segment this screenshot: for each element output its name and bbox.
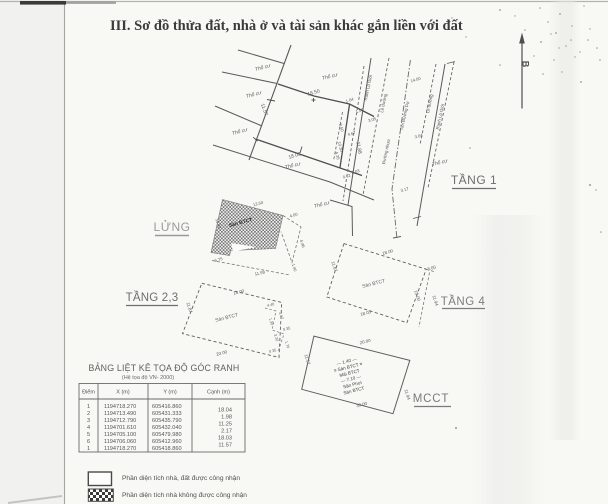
svg-text:1194713.490: 1194713.490 [104, 411, 136, 417]
svg-text:1194718.270: 1194718.270 [104, 404, 136, 410]
svg-text:LỬNG: LỬNG [154, 219, 191, 234]
svg-text:1194701.610: 1194701.610 [104, 425, 136, 431]
svg-text:605416.860: 605416.860 [152, 404, 182, 410]
svg-text:Phần diện tích nhà, đất được c: Phần diện tích nhà, đất được công nhận [122, 473, 240, 482]
svg-text:Phần diện tích nhà không được: Phần diện tích nhà không được công nhận [122, 490, 247, 499]
svg-text:3: 3 [87, 418, 90, 424]
svg-text:Y (m): Y (m) [163, 390, 177, 396]
svg-text:III. Sơ đồ thửa đất, nhà ở và: III. Sơ đồ thửa đất, nhà ở và tài sản kh… [110, 18, 463, 34]
svg-text:BẢNG LIỆT KÊ TỌA ĐỘ GÓC RANH: BẢNG LIỆT KÊ TỌA ĐỘ GÓC RANH [89, 362, 240, 373]
svg-text:18.04: 18.04 [218, 408, 232, 414]
svg-text:1: 1 [87, 404, 90, 410]
svg-text:(Hệ tọa độ VN- 2000): (Hệ tọa độ VN- 2000) [122, 375, 174, 381]
svg-text:605418.860: 605418.860 [152, 446, 182, 452]
svg-text:605435.790: 605435.790 [152, 418, 182, 424]
svg-text:605432.040: 605432.040 [152, 425, 182, 431]
svg-text:18.03: 18.03 [218, 436, 232, 442]
svg-text:1.98: 1.98 [221, 415, 232, 421]
svg-text:TẦNG 2,3: TẦNG 2,3 [126, 291, 179, 304]
svg-text:4: 4 [87, 425, 90, 431]
svg-text:1194718.270: 1194718.270 [104, 446, 136, 452]
svg-text:Cạnh (m): Cạnh (m) [207, 390, 230, 396]
svg-text:1: 1 [87, 446, 90, 452]
svg-text:TẦNG 1: TẦNG 1 [451, 172, 497, 187]
svg-text:605412.960: 605412.960 [152, 439, 182, 445]
svg-text:B: B [520, 61, 530, 68]
svg-text:11.57: 11.57 [218, 443, 232, 449]
svg-text:1194712.790: 1194712.790 [104, 418, 136, 424]
svg-text:11.25: 11.25 [218, 422, 232, 428]
svg-text:5: 5 [87, 432, 90, 438]
svg-text:X (m): X (m) [116, 390, 130, 396]
svg-text:Điểm: Điểm [82, 389, 95, 396]
svg-text:605431.333: 605431.333 [152, 411, 182, 417]
svg-text:MCCT: MCCT [413, 393, 449, 405]
svg-text:605479.980: 605479.980 [152, 432, 182, 438]
svg-text:2: 2 [87, 411, 90, 417]
svg-text:TẦNG 4: TẦNG 4 [441, 295, 486, 308]
svg-text:1194705.100: 1194705.100 [104, 432, 136, 438]
svg-text:2.17: 2.17 [221, 429, 232, 435]
svg-text:6: 6 [87, 439, 90, 445]
svg-text:1194706.060: 1194706.060 [104, 439, 136, 445]
